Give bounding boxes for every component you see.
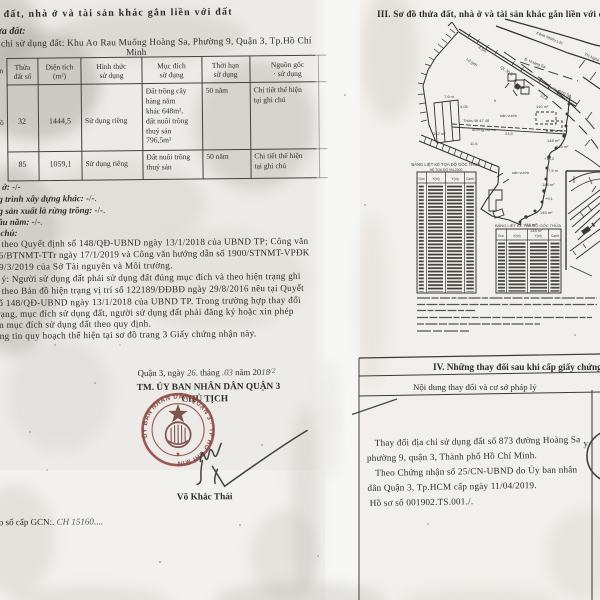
svg-text:sân vườn: sân vườn — [512, 170, 529, 175]
svg-text:140 m²: 140 m² — [536, 104, 549, 109]
svg-text:Sử dụng riêng: Sử dụng riêng — [85, 159, 128, 168]
svg-text:162 m²: 162 m² — [433, 131, 446, 136]
svg-text:19/3/2019 của Sở Tài nguyên và: 19/3/2019 của Sở Tài nguyên và Môi trườn… — [0, 260, 173, 272]
svg-text:ửa đất:: ửa đất: — [0, 26, 26, 37]
svg-text:Đất trồng cây: Đất trồng cây — [146, 86, 187, 95]
svg-text:sân vườn: sân vườn — [500, 113, 517, 118]
svg-text:thuỷ sản: thuỷ sản — [146, 162, 172, 171]
svg-text:Mục đích: Mục đích — [157, 61, 186, 70]
svg-text:ng trình xây dựng khác: -/-.: ng trình xây dựng khác: -/-. — [0, 193, 97, 204]
svg-text:+9,1: +9,1 — [545, 196, 554, 201]
svg-text:đất nuôi trồng: đất nuôi trồng — [146, 116, 188, 125]
svg-text:n: n — [0, 66, 4, 75]
svg-text:ào sổ cấp GCN:. CH 15160....: ào sổ cấp GCN:. CH 15160.... — [0, 516, 103, 527]
svg-text:Hình thức: Hình thức — [96, 62, 127, 71]
svg-text:sử dụng: sử dụng — [214, 70, 238, 79]
svg-text:i chú:: i chú: — [0, 228, 18, 238]
svg-text:Y(m): Y(m) — [451, 177, 458, 181]
svg-text:Thửa 46 47 48: Thửa 46 47 48 — [463, 118, 490, 123]
svg-text:Diện tích: Diện tích — [46, 62, 74, 71]
svg-text:Chi tiết thể hiện: Chi tiết thể hiện — [254, 151, 302, 161]
svg-text:11,6: 11,6 — [470, 141, 478, 146]
svg-text:Sử dụng riêng: Sử dụng riêng — [85, 116, 128, 125]
svg-text:Võ Khắc Thái: Võ Khắc Thái — [177, 491, 233, 502]
svg-text:85: 85 — [18, 160, 26, 169]
svg-text:sử dụng: sử dụng — [100, 71, 124, 80]
svg-text:7,6 m: 7,6 m — [444, 94, 455, 99]
svg-text:1444,5: 1444,5 — [49, 116, 71, 125]
svg-text:Đất nuôi trồng: Đất nuôi trồng — [146, 152, 190, 161]
svg-text:hàng năm: hàng năm — [146, 96, 176, 105]
svg-text:sử dụng: sử dụng — [160, 70, 184, 79]
svg-text:146 m²: 146 m² — [540, 210, 553, 215]
svg-text:đất số: đất số — [14, 72, 32, 81]
svg-text:khác 648m²,: khác 648m², — [146, 106, 183, 115]
svg-text:à ở: -/-: à ở: -/- — [0, 182, 21, 192]
svg-text:+10,2: +10,2 — [544, 156, 555, 161]
svg-text:50 năm: 50 năm — [206, 86, 229, 95]
svg-text:ng sản xuất là rừng trồng: -/-: ng sản xuất là rừng trồng: -/-. — [0, 205, 105, 216]
svg-text:148 m²: 148 m² — [542, 182, 555, 187]
svg-text:Chi tiết thể hiện: Chi tiết thể hiện — [254, 85, 302, 95]
svg-text:ồ: ồ — [0, 118, 4, 127]
svg-text:tại ghi chú: tại ghi chú — [254, 161, 286, 170]
svg-text:796,5m²: 796,5m² — [146, 135, 172, 144]
svg-text:32: 32 — [18, 117, 26, 126]
svg-text:1059,1: 1059,1 — [49, 159, 71, 168]
svg-text:Quận 3, ngày 26. tháng .03 nă: Quận 3, ngày 26. tháng .03 năm 2018/2 — [138, 367, 276, 378]
svg-text:Góc: Góc — [418, 177, 425, 181]
svg-text:IV. Những thay đổi sau khi cấp: IV. Những thay đổi sau khi cấp giấy chứn… — [433, 362, 600, 373]
svg-text:đường nội bộ: đường nội bộ — [472, 127, 497, 132]
svg-text:X(m): X(m) — [432, 177, 439, 181]
svg-text:Cạnh: Cạnh — [466, 177, 474, 181]
svg-text:Nguồn gốc: Nguồn gốc — [271, 60, 305, 69]
svg-text:4,05: 4,05 — [460, 104, 469, 109]
svg-text:Nội dung thay đổi và cơ sở phá: Nội dung thay đổi và cơ sở pháp lý — [413, 382, 537, 392]
svg-text:(m²): (m²) — [53, 71, 67, 80]
svg-text:ên mục đích sử dụng đất theo q: ên mục đích sử dụng đất theo quy định. — [0, 318, 151, 330]
svg-text:· sử dụng: · sử dụng — [273, 69, 302, 78]
svg-text:thuỷ sản: thuỷ sản — [146, 126, 172, 135]
svg-text:7,5 m: 7,5 m — [548, 168, 559, 173]
svg-text:tại ghi chú: tại ghi chú — [254, 95, 286, 104]
svg-text:II: II — [494, 98, 496, 103]
svg-text:Thửa: Thửa — [15, 63, 31, 72]
svg-text:BẢNG LIỆT KÊ TỌA ĐỘ GÓC THỬA: BẢNG LIỆT KÊ TỌA ĐỘ GÓC THỬA — [495, 223, 561, 228]
svg-text:Hồ sơ số 001902.TS.001./.: Hồ sơ số 001902.TS.001./. — [370, 496, 474, 508]
svg-text:HỆ TỌA ĐỘ VN-2000: HỆ TỌA ĐỘ VN-2000 — [430, 167, 463, 172]
svg-text:III. Sơ đồ thửa đất, nhà ở và: III. Sơ đồ thửa đất, nhà ở và tài sản kh… — [377, 9, 600, 20]
svg-text:BẢNG LIỆT KÊ TỌA ĐỘ GÓC THỬA: BẢNG LIỆT KÊ TỌA ĐỘ GÓC THỬA — [411, 162, 480, 167]
svg-text:148 m²: 148 m² — [547, 138, 560, 143]
svg-text:Y(m): Y(m) — [534, 234, 541, 238]
svg-text:Cạnh: Cạnh — [551, 234, 559, 238]
svg-text:148 m²: 148 m² — [556, 144, 569, 149]
svg-text:Thời hạn: Thời hạn — [212, 61, 239, 70]
svg-text:23,5: 23,5 — [505, 131, 514, 136]
svg-text:★: ★ — [175, 451, 180, 458]
svg-text:50 năm: 50 năm — [206, 152, 229, 161]
svg-text:lâu năm: -/-.: lâu năm: -/-. — [0, 217, 42, 227]
svg-text:Góc: Góc — [498, 234, 505, 238]
svg-text:X(m): X(m) — [513, 234, 520, 238]
